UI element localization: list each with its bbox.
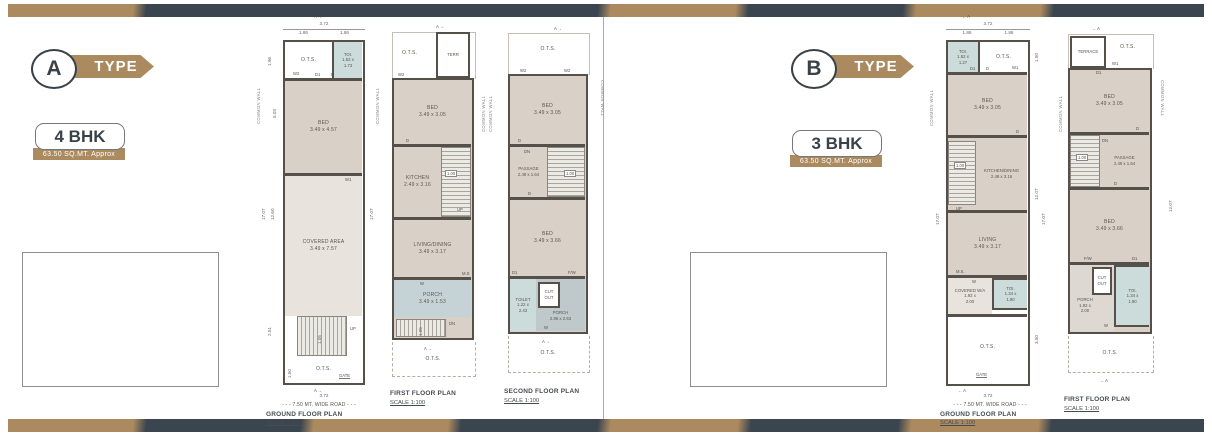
room-toilet-top: TOI. 1.52 x 1.73 [332,42,362,78]
marker-door-d-bed: D [1016,129,1019,134]
room-dim: 3.49 x 3.66 [534,238,561,245]
marker-window-w2: W2 [293,71,299,76]
marker-window-w: W [972,279,976,284]
marker-window-w2a: W2 [520,68,526,73]
marker-window-w: W [544,325,548,330]
marker-ms: M.S [462,271,469,276]
dim-1-50: 1.50 [1034,42,1039,62]
marker-window-w2: W2 [398,72,404,77]
marker-door-d-top: D [518,138,521,143]
room-toilet: TOI. 1.34 x 1.90 [1114,265,1149,327]
dim-half-left: 1.86 [283,30,324,35]
marker-window-w: W [420,281,424,286]
room-ots-bottom: O.T.S. [508,350,588,357]
marker-window-w1: W1 [1112,61,1118,66]
room-label: LIVING/DINING [414,242,452,249]
type-a-letter: A [46,57,61,81]
room-dim: 1.73 [344,63,352,69]
common-wall-label-right: COMMON WALL [1160,80,1165,132]
type-b-word: TYPE [854,58,897,75]
section-marker-bottom: A → [542,339,550,344]
dim-12-07: 12.07 [1168,184,1173,212]
road-label: - - - 7.50 MT. WIDE ROAD - - - [922,402,1058,408]
plan-title: FIRST FLOOR PLAN [390,390,456,397]
room-label: BED [427,105,438,112]
marker-door-d: D [406,138,409,143]
marker-dn: DN [524,149,530,154]
room-dim: 2.00 [1081,308,1089,314]
plan-a-second: A → O.T.S. W2 W2 COMMON WALL BED 3.49 x … [498,24,616,428]
room-dim: 2.49 x 3.16 [991,174,1012,180]
plan-outline: BED 3.49 x 3.05 D KITCHEN 2.49 x 3.16 1.… [392,78,474,340]
room-living-dining: LIVING/DINING 3.49 x 3.17 [394,220,471,277]
stair-dim-1-00: 1.00 [954,162,966,169]
dim-half-left: 1.86 [946,30,988,35]
marker-door-d1-low: D1 [1132,256,1137,261]
plan-b-ground: ← A 3.72 1.86 1.86 COMMON WALL 1.50 12.0… [928,14,1056,428]
marker-up: UP [956,206,962,211]
dim-bottom-width: 3.72 [283,393,365,398]
stair-dim-1-05: 1.05 [418,320,423,336]
room-bed: BED 3.49 x 3.05 [948,75,1027,135]
room-terrace: TERRACE [1070,36,1106,68]
marker-gate: GATE [976,372,987,378]
common-wall-label-left: COMMON WALL [256,72,261,124]
room-dim: 3.49 x 3.05 [1096,101,1123,108]
dim-3-50: 3.50 [1034,322,1039,344]
room-label: PORCH [423,292,442,299]
room-porch-label: PORCH 1.92 x 2.00 [1070,297,1100,314]
room-dim: 3.49 x 3.17 [419,249,446,256]
room-covered-wa: COVERED W/A 1.92 x 2.00 [948,278,992,314]
room-label: LIVING [979,237,997,244]
bhk-b-title: 3 BHK [792,130,882,157]
room-label: BED [318,120,329,127]
stair-dim-1-00: 1.00 [564,170,576,177]
section-marker: A → [314,14,322,19]
room-bed-2: BED 3.49 x 3.66 [1070,190,1149,262]
dim-17-07-left: 17.07 [261,192,266,220]
type-a-ellipse: A [31,49,77,89]
plan-outline: BED 3.49 x 3.05 D DN 1.00 PASSAGE 2.49 x… [508,74,588,334]
room-porch: PORCH 3.49 x 1.53 [394,280,471,317]
dim-5-03: 5.03 [272,94,277,118]
type-b-arrow: TYPE [824,55,914,78]
common-wall-label-2: COMMON WALL [488,80,493,132]
room-ots-bottom: O.T.S. [285,356,362,382]
marker-door-d: D [986,66,989,71]
common-wall-label: COMMON WALL [929,74,934,126]
room-label: BED [1104,219,1115,226]
room-covered-area: COVERED AREA 3.49 x 7.57 [285,176,362,316]
room-label: KITCHEN [406,175,429,182]
plan-title: FIRST FLOOR PLAN [1064,396,1130,403]
room-bed: BED 3.49 x 3.05 [394,80,471,144]
plan-scale: SCALE 1:100 [390,400,425,406]
dim-total-width: 3.72 [946,21,1030,26]
room-bed: BED 3.49 x 4.57 [285,81,362,173]
brochure-page: TYPE A 4 BHK 63.50 SQ.MT. Approx A → 3.7… [0,0,1212,436]
room-ots-top: O.T.S. [508,46,588,53]
dim-half-right: 1.86 [324,30,365,35]
plan-scale: SCALE 1:100 [266,420,301,426]
section-marker-bottom: ← A [1100,378,1108,383]
section-marker-bottom: ← A [958,388,966,393]
room-label: BED [542,231,553,238]
staircase [441,147,471,217]
plan-outline: TOI. 1.52 x 1.27 O.T.S. W1 D1 D BED 3.49… [946,40,1030,386]
room-dim: 3.49 x 3.66 [1096,226,1123,233]
room-ots-top: O.T.S. [1120,44,1135,51]
room-ots-bottom: O.T.S. [392,356,474,363]
dim-bottom-width: 3.72 [946,393,1030,398]
plan-a-first: A → O.T.S. TERR W2 COMMON WALL COMMON WA… [384,24,498,428]
dim-total-width: 3.72 [283,21,365,26]
room-dim: 1.90 [1128,299,1136,305]
marker-door-d1-top: D1 [1096,70,1101,75]
plan-outline: O.T.S. TOI. 1.52 x 1.73 W2 D1 D BED 3.49… [283,40,365,385]
dim-17-07-right: 17.07 [1041,197,1046,225]
plan-a-ground: A → 3.72 1.86 1.86 COMMON WALL 1.96 5.03… [256,14,382,428]
road-label: - - - 7.50 MT. WIDE ROAD - - - [252,402,386,408]
staircase [297,316,347,356]
marker-gate: GATE [339,373,350,379]
room-terrace: TERR [436,32,470,78]
room-label: COVERED AREA [303,239,345,246]
room-dim: 2.43 [519,308,527,314]
stair-dim-1-00: 1.00 [1076,154,1088,161]
plan-scale: SCALE 1:100 [940,420,975,426]
room-dim: 2.49 x 1.64 [518,172,539,178]
plan-outline: BED 3.49 x 3.05 D DN 1.00 PASSAGE 2.49 x… [1068,68,1152,334]
dim-1-96: 1.96 [267,42,272,66]
room-bed-2: BED 3.49 x 3.66 [510,200,585,276]
plan-scale: SCALE 1:100 [504,398,539,404]
section-marker: A → [554,26,562,31]
stair-dim-1-05: 1.05 [317,322,322,344]
type-b-letter: B [806,57,821,81]
marker-ms: M.S. [956,269,965,274]
dim-17-07-right: 17.07 [369,192,374,220]
marker-window-w2b: W2 [564,68,570,73]
common-wall-label: COMMON WALL [600,80,605,132]
room-dim: 3.49 x 3.05 [534,110,561,117]
room-kitchen: KITCHEN 2.49 x 3.16 [394,147,441,217]
room-dim: 3.49 x 3.05 [974,105,1001,112]
room-kitchen-dining: KITCHEN/DINING 2.49 x 3.16 [976,138,1027,210]
cut-out-box: CUT OUT [1092,267,1112,295]
type-a-arrow: TYPE [64,55,154,78]
room-dim: 3.49 x 4.57 [310,127,337,134]
room-dim: 1.27 [959,60,967,66]
marker-door-d1: D1 [512,270,517,275]
room-dim: 1.90 [1006,297,1014,303]
room-dim: 3.49 x 1.53 [419,299,446,306]
photo-placeholder-b [690,252,887,387]
room-dim: 2.00 [966,299,974,305]
common-wall-label-1: COMMON WALL [481,80,486,132]
dim-1-50: 1.50 [287,358,292,378]
dim-12-60: 12.60 [270,192,275,220]
marker-door-d: D [331,72,334,77]
marker-door-d-bed: D [1136,126,1139,131]
room-ots-top: O.T.S. [402,50,417,57]
room-dim: 2.49 x 1.64 [1114,161,1135,167]
room-label: BED [982,98,993,105]
plan-b-first: ← A TERRACE O.T.S. W1 D1 COMMON WALL COM… [1056,24,1178,428]
room-bed-1: BED 3.49 x 3.05 [1070,70,1149,132]
common-wall-label-right: COMMON WALL [375,72,380,124]
room-dim: 2.49 x 3.16 [404,182,431,189]
marker-fw: F/W [1084,256,1092,261]
marker-fw: F/W [568,270,576,275]
plan-scale: SCALE 1:100 [1064,406,1099,412]
plan-title: GROUND FLOOR PLAN [266,411,342,418]
bhk-a-title: 4 BHK [35,123,125,150]
room-ots-bottom: O.T.S. [948,317,1027,377]
room-porch-label: PORCH 2.86 x 2.53 [536,310,585,321]
room-toilet-bottom: TOI. 1.34 x 1.90 [992,278,1027,310]
room-label: BED [542,103,553,110]
section-marker: ← A [962,14,970,19]
marker-window-w1: W1 [345,177,351,182]
marker-up: UP [457,207,463,212]
marker-window-w: W [1104,323,1108,328]
cutout-label: OUT [1097,281,1106,287]
dim-2-51: 2.51 [267,312,272,336]
room-toilet: TOILET 1.22 x 2.43 [510,279,536,331]
room-passage: PASSAGE 2.49 x 1.64 [510,147,547,197]
marker-door-d1: D1 [315,72,320,77]
room-dim: 2.86 x 2.53 [550,316,571,322]
marker-window-w1: W1 [1012,65,1018,70]
plan-title: GROUND FLOOR PLAN [940,411,1016,418]
dim-17-07-left: 17.07 [935,197,940,225]
room-living: LIVING 3.49 x 3.17 [948,213,1027,275]
marker-door-d-mid: D [1114,181,1117,186]
dim-12-07: 12.07 [1034,172,1039,200]
cut-out-box: CUT OUT [538,282,560,308]
staircase [948,141,976,205]
section-marker-bottom: A → [424,346,432,351]
type-a-word: TYPE [94,58,137,75]
room-dim: 3.49 x 3.17 [974,244,1001,251]
cutout-label: OUT [544,295,553,301]
dim-half-right: 1.86 [988,30,1030,35]
room-bed-1: BED 3.49 x 3.05 [510,76,585,144]
room-ots-bottom: O.T.S. [1068,350,1152,357]
room-dim: 3.49 x 3.05 [419,112,446,119]
marker-up: UP [350,326,356,331]
room-dim: 3.49 x 7.57 [310,246,337,253]
section-marker: ← A [1092,26,1100,31]
marker-dn: DN [1102,138,1108,143]
type-b-ellipse: B [791,49,837,89]
stair-dim-1-00: 1.00 [445,170,457,177]
section-marker: A → [436,24,444,29]
marker-door-d1: D1 [970,66,975,71]
marker-door-d-mid: D [528,191,531,196]
photo-placeholder-a [22,252,219,387]
section-marker-bottom: A → [314,388,322,393]
marker-dn: DN [449,321,455,326]
room-label: BED [1104,94,1115,101]
plan-title: SECOND FLOOR PLAN [504,388,579,395]
common-wall-label-left: COMMON WALL [1058,80,1063,132]
